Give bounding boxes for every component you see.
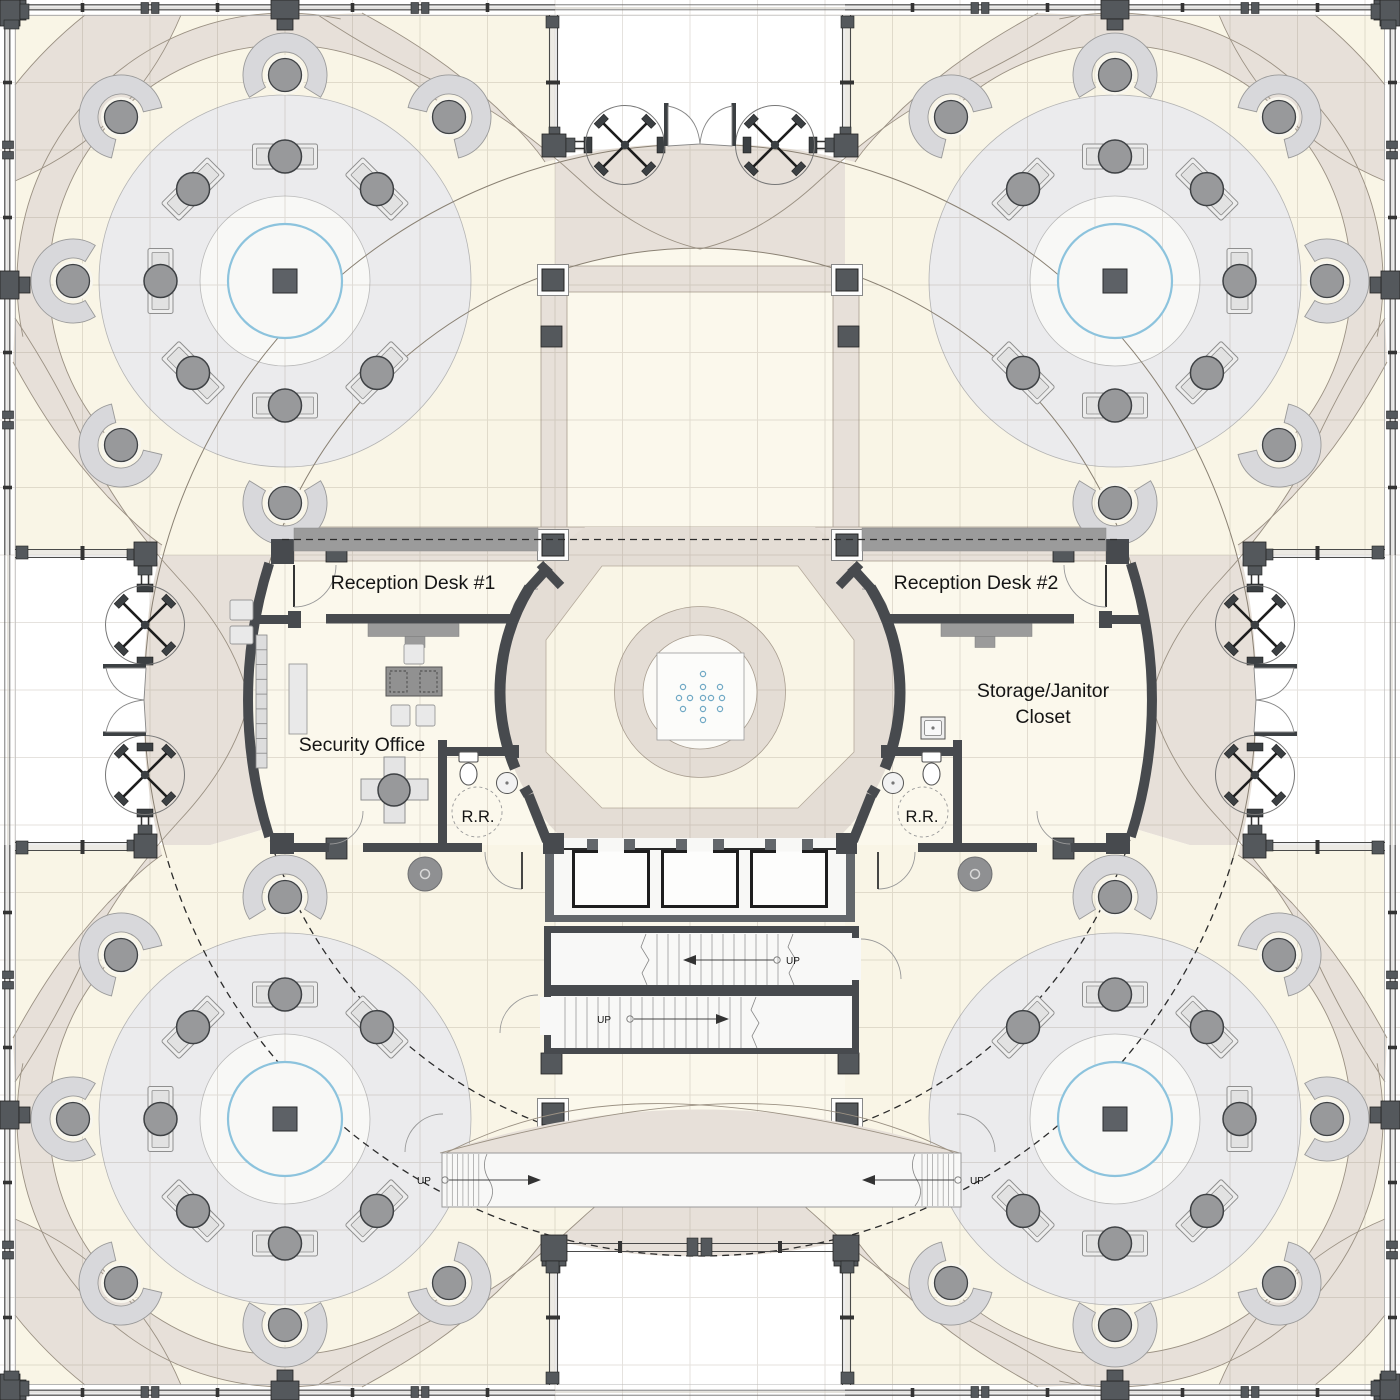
svg-text:R.R.: R.R. (462, 808, 495, 826)
svg-text:UP: UP (970, 1176, 984, 1187)
svg-text:Closet: Closet (1015, 706, 1071, 728)
svg-text:Reception Desk #2: Reception Desk #2 (894, 572, 1059, 594)
svg-text:Reception Desk #1: Reception Desk #1 (331, 572, 496, 594)
svg-text:R.R.: R.R. (906, 808, 939, 826)
svg-text:UP: UP (786, 956, 800, 967)
svg-text:UP: UP (417, 1176, 431, 1187)
svg-text:UP: UP (597, 1015, 611, 1026)
svg-text:Storage/Janitor: Storage/Janitor (977, 680, 1110, 702)
svg-text:Security Office: Security Office (299, 734, 425, 756)
